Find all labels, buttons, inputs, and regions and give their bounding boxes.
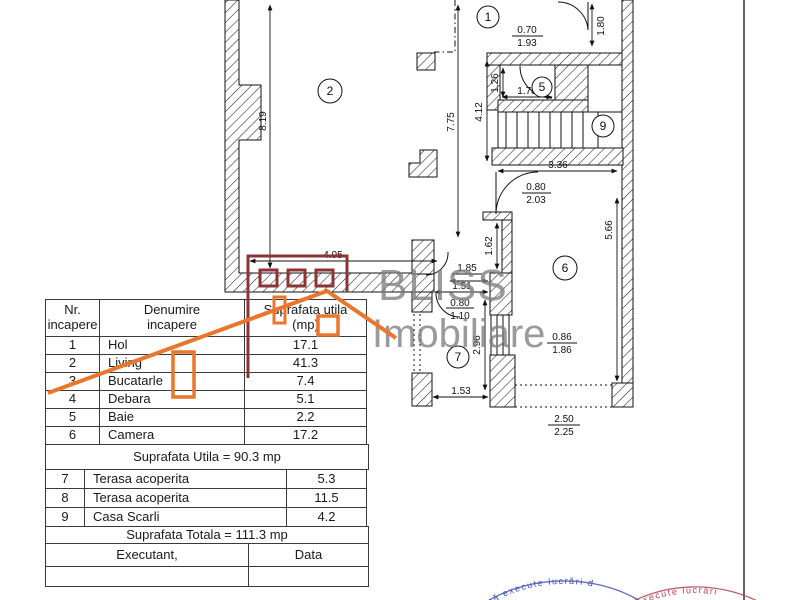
stairs [498,112,598,148]
table-row: 1 Hol 17.1 [45,337,369,355]
stamps: ANCPI să execute lucrări d ANCPI să exec… [444,576,800,600]
dim-label: 0.80 [450,298,470,309]
dim-label: 0.86 [552,332,572,343]
dim-label: 8.19 [258,111,269,131]
dim-label: 2.50 [554,414,574,425]
dim-label: 0.80 [526,182,546,193]
pier [412,292,432,312]
bath-top-wall [487,53,633,65]
signature-row: Executant, Data [45,544,369,567]
subtotal-row: Suprafata Utila = 90.3 mp [45,445,369,470]
table-row: 9 Casa Scarli 4.2 [45,508,369,527]
room-number: 5 [539,80,546,94]
red-stamp-icon [577,587,800,600]
wall-step [502,220,512,273]
table-row: 2 Living 41.3 [45,355,369,373]
logo-window-icon [316,270,333,286]
table-header-row: Nr. incapere Denumire incapere Suprafata… [45,300,369,337]
room-number: 7 [455,350,462,364]
dim-label: 2.25 [554,427,574,438]
table-row: 4 Debara 5.1 [45,391,369,409]
room-number: 1 [485,10,492,24]
dim-label: 2.96 [472,335,483,355]
dim-label: 3.36 [548,160,568,171]
dim-label: 1.78 [517,86,537,97]
header-area-cell: Suprafata utila (mp) [244,299,367,337]
blue-stamp-text: ANCPI să execute lucrări d [455,576,595,600]
logo-window-icon [288,270,305,286]
bath-bottom-wall [498,100,588,112]
bath-right-wall [555,65,588,112]
watermark-line1: BLISS [378,261,508,310]
watermark: BLISS Imobiliare [372,261,545,356]
dim-label: 1.26 [490,73,501,93]
dim-label: 4.95 [323,250,343,261]
door-arc [520,66,552,98]
room-number: 2 [327,84,334,98]
room-number: 9 [600,119,607,133]
dim-label: 1.53 [451,386,471,397]
dim-label: 1.10 [450,311,470,322]
table-row: 8 Terasa acoperita 11.5 [45,489,369,508]
table-row: 7 Terasa acoperita 5.3 [45,470,369,489]
svg-text:ANCPI să execute lucrări: ANCPI să execute lucrări [589,585,718,600]
dim-label: 2.03 [526,195,546,206]
table-row: 3 Bucatarle 7.4 [45,373,369,391]
dim-label: 1.93 [517,38,537,49]
dim-label: 7.75 [446,112,457,132]
hidden-lines [414,0,633,407]
dim-label: 1.80 [596,16,607,36]
dim-label: 1.62 [484,236,495,256]
wall-junction [412,240,434,274]
left-and-bottom-wall [225,0,434,292]
svg-text:ANCPI să execute lucrări d: ANCPI să execute lucrări d [455,576,595,600]
signature-empty-row [45,567,369,587]
window-symbol [491,315,509,355]
bath-left-wall [487,65,500,110]
data-label: Data [248,543,369,567]
logo-window-icon [260,270,277,286]
dim-label: 1.86 [552,345,572,356]
column [417,53,435,70]
door-swings [426,2,588,317]
shaft [588,65,622,112]
table-row: 6 Camera 17.2 [45,427,369,445]
dim-label: 1.85 [457,263,477,274]
door-arc [426,252,448,275]
red-stamp-text: ANCPI să execute lucrări [589,585,718,600]
dim-label: 4.12 [474,102,485,122]
dim-label: 5.66 [604,220,615,240]
pier [612,383,633,407]
total-row: Suprafata Totala = 111.3 mp [45,527,369,544]
table-row: 5 Baie 2.2 [45,409,369,427]
wall-step [483,212,512,220]
dim-label: 1.51 [452,281,472,292]
dim-label: 0.70 [517,25,537,36]
door-arc [558,2,588,30]
blue-stamp-icon [444,581,684,600]
pier [490,355,515,407]
room-area-table: Nr. incapere Denumire incapere Suprafata… [45,300,369,587]
column [409,150,437,177]
watermark-line2: Imobiliare [372,312,545,356]
header-nr-cell: Nr. incapere [45,299,100,337]
door-arc [436,293,460,317]
room-number: 6 [562,261,569,275]
door-arc [496,172,538,214]
pier [412,373,432,406]
wall-step [490,273,512,315]
executant-label: Executant, [45,543,249,567]
header-name-cell: Denumire incapere [99,299,245,337]
scanned-floor-plan-page: Nr. incapere Denumire incapere Suprafata… [0,0,800,600]
right-outer-wall [622,0,633,385]
under-stair-wall [492,148,623,165]
